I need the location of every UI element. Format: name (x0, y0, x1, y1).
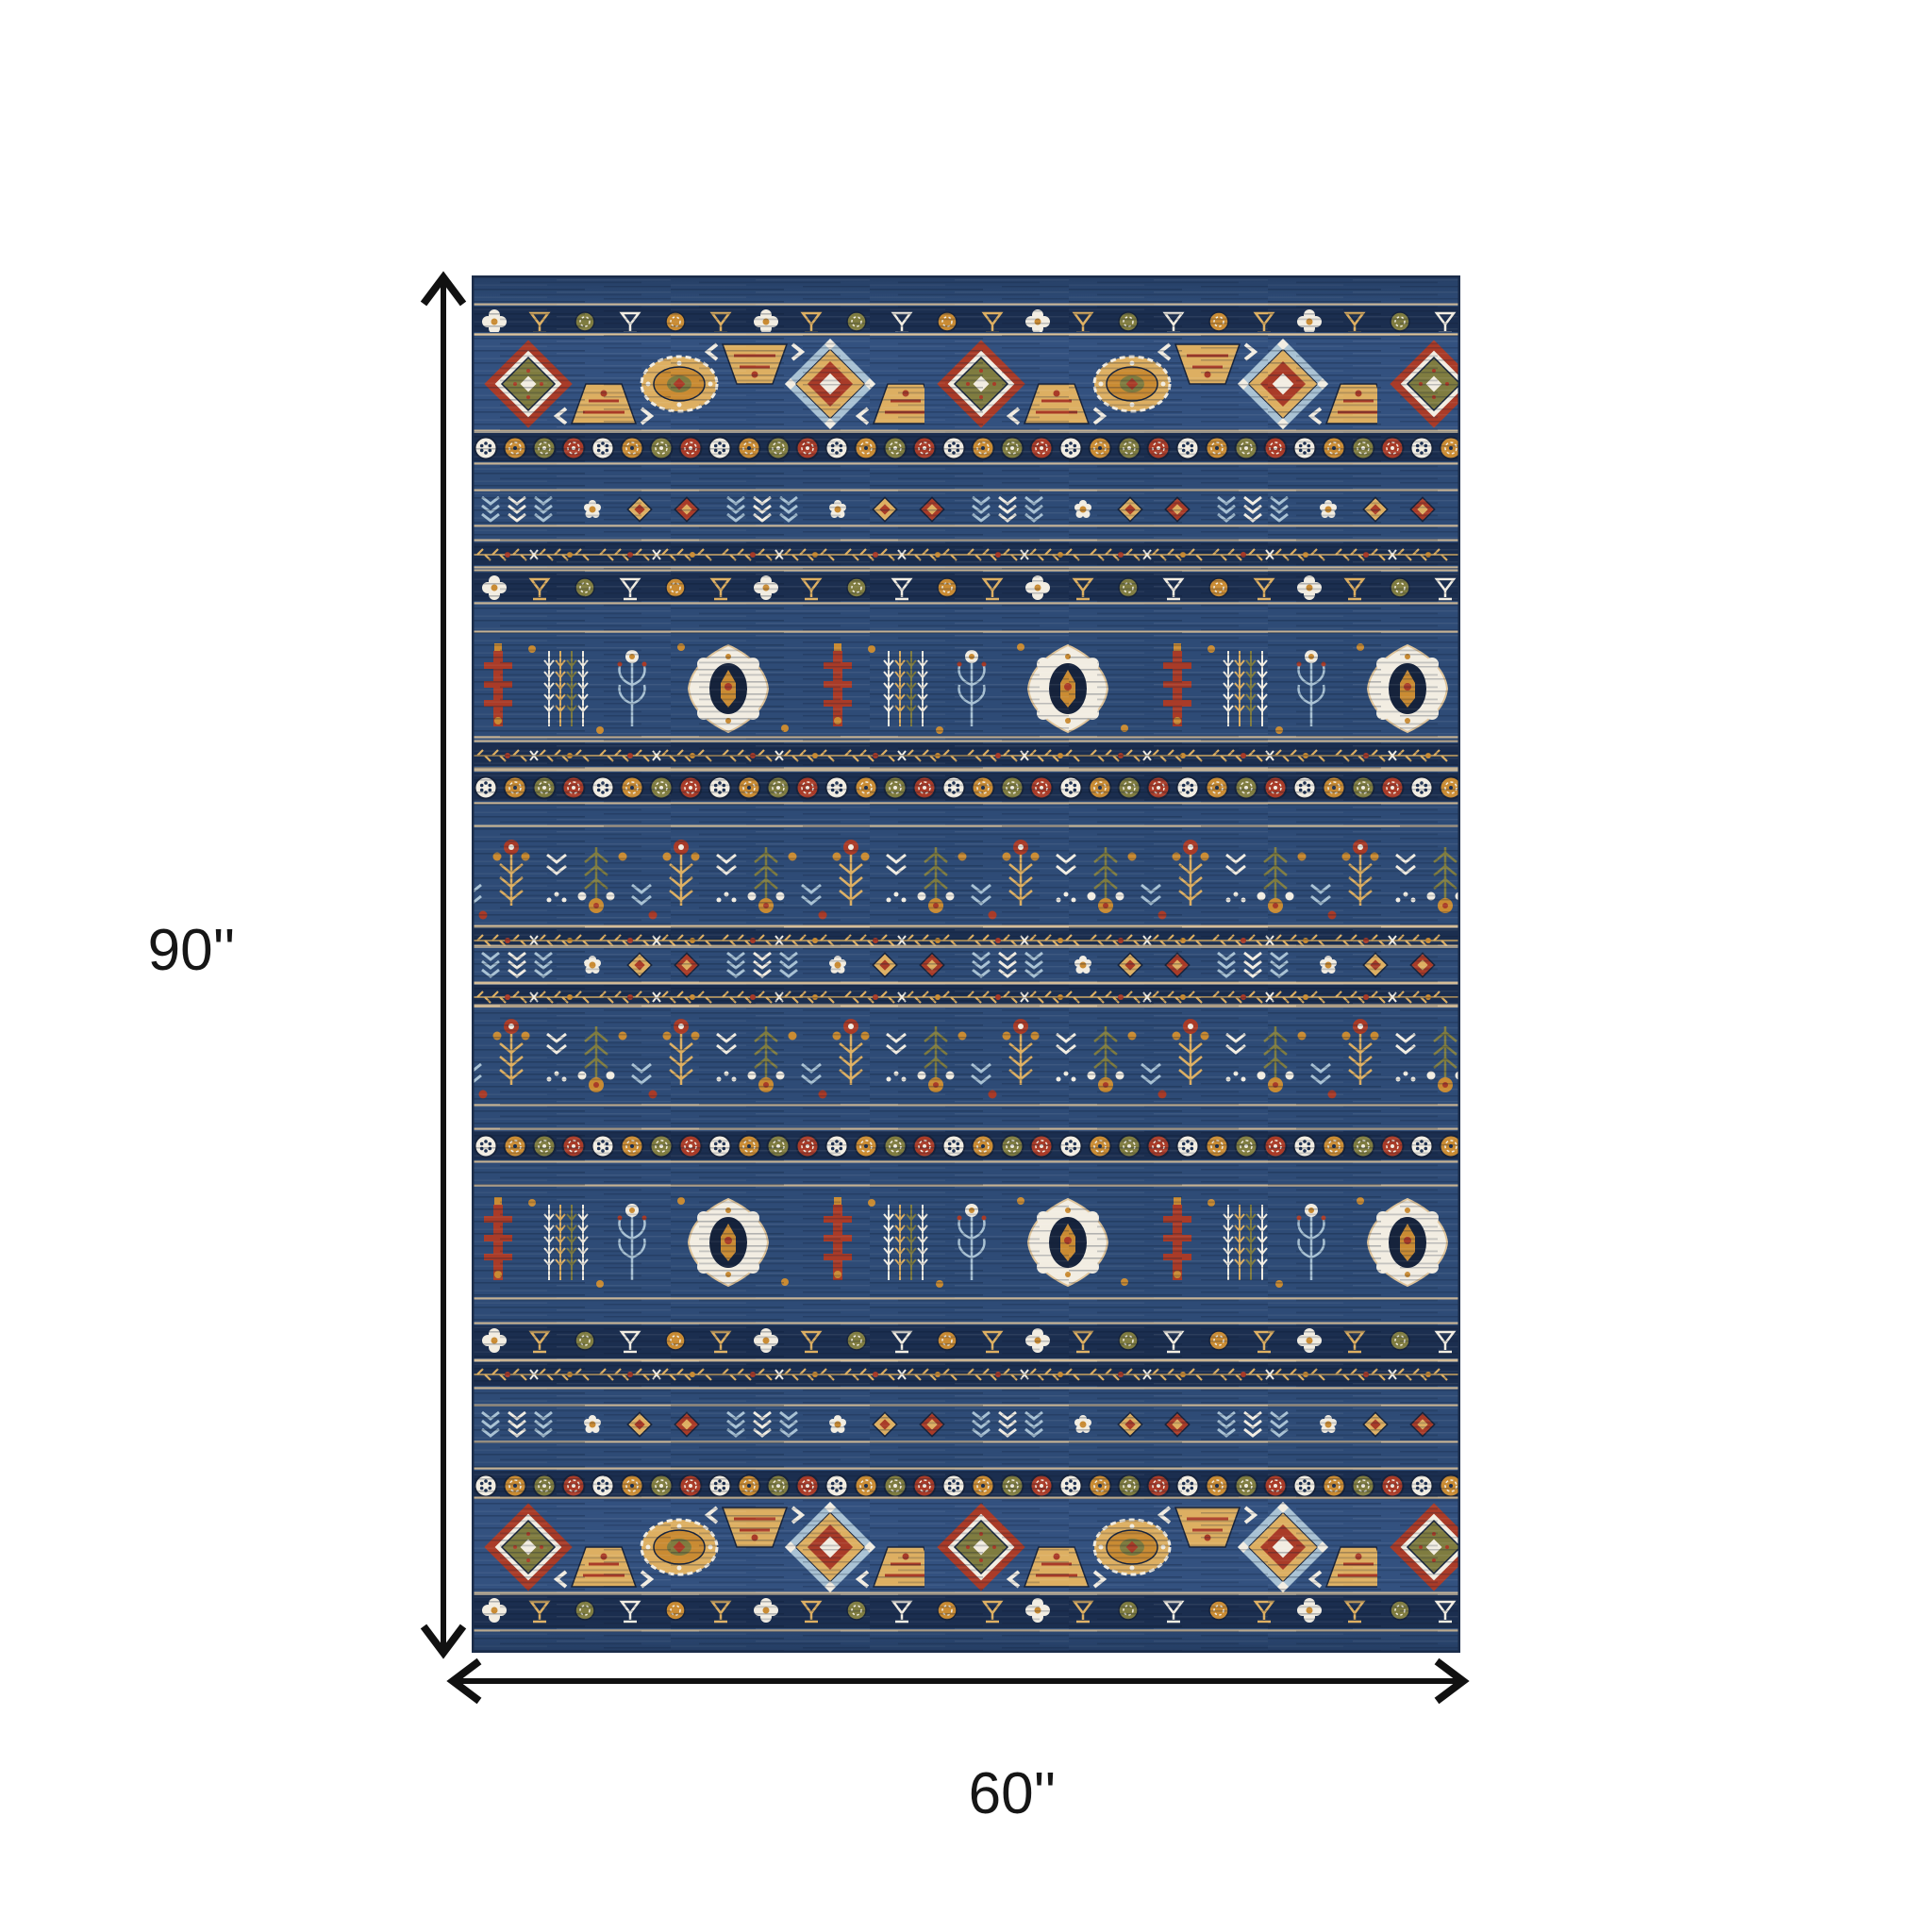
height-dimension-arrow (424, 277, 463, 1653)
product-dimension-diagram: 90'' 60'' (0, 0, 1932, 1932)
width-dimension-arrow (453, 1661, 1463, 1701)
height-dimension-label: 90'' (107, 922, 276, 980)
width-dimension-label: 60'' (927, 1765, 1097, 1824)
rug-image (472, 275, 1460, 1653)
rug-vignette (472, 275, 1460, 1653)
